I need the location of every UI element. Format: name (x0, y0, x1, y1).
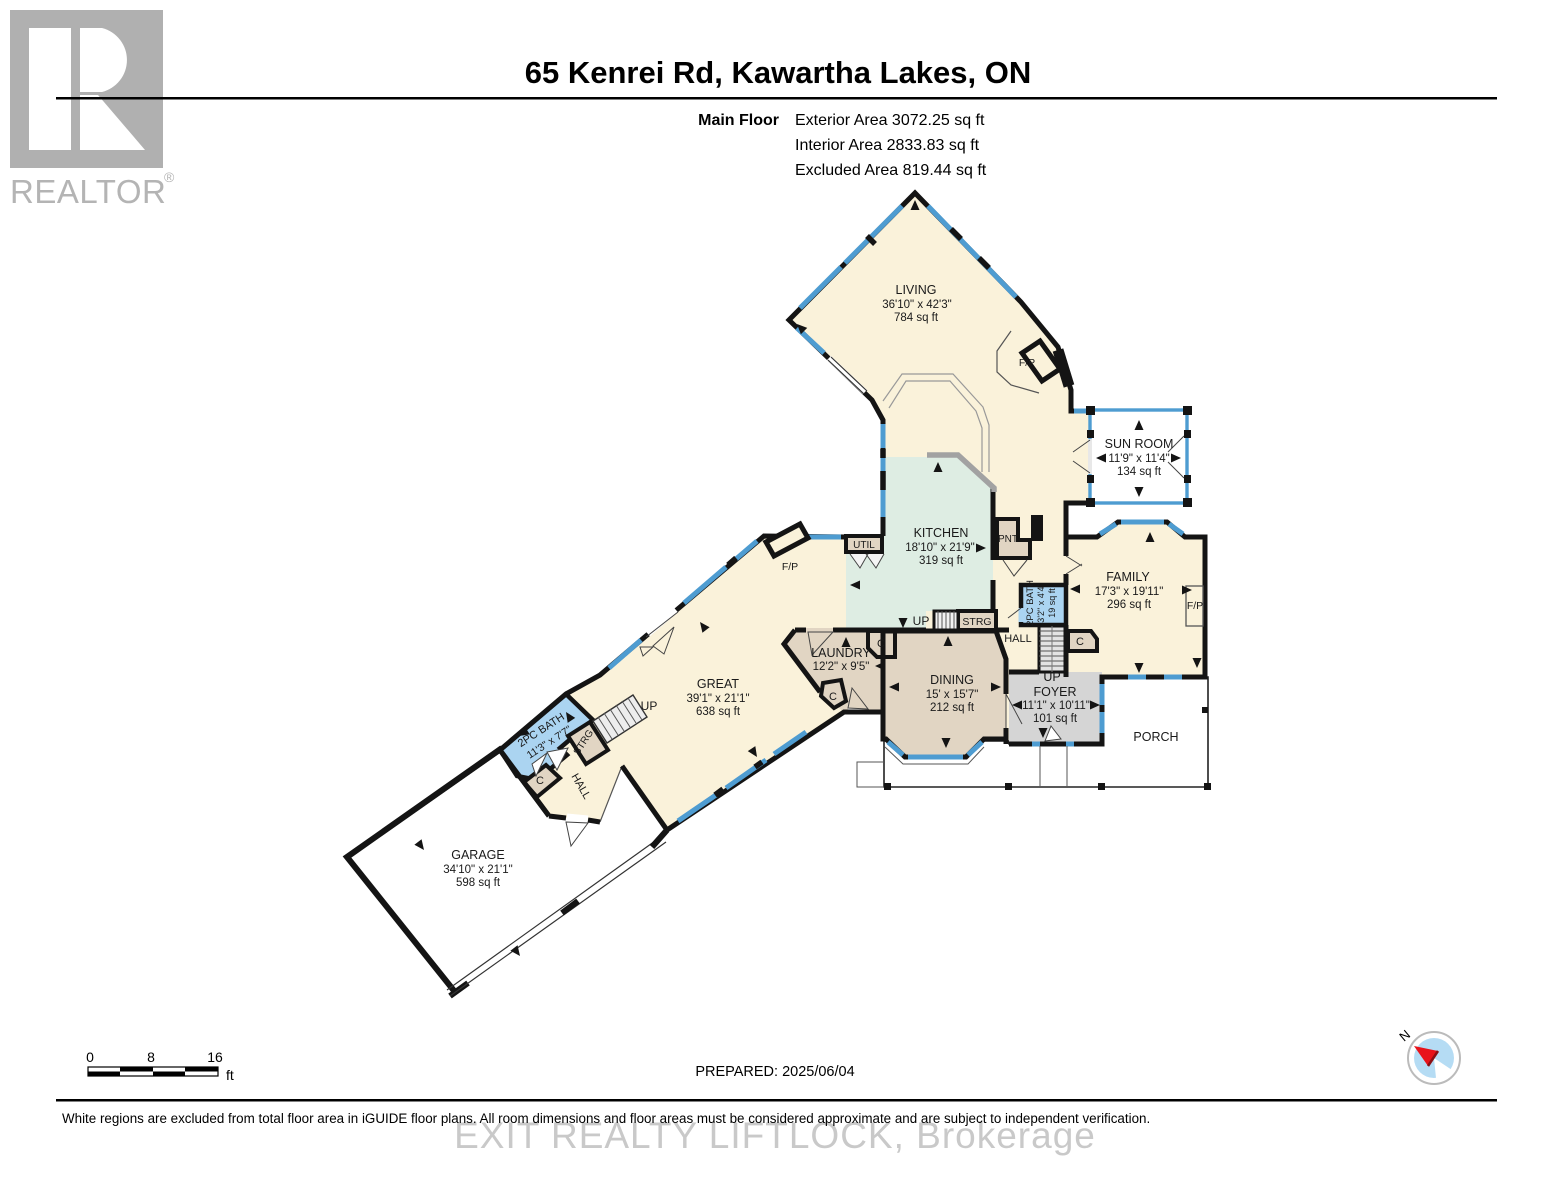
svg-text:319 sq ft: 319 sq ft (919, 555, 964, 567)
svg-text:GREAT: GREAT (697, 677, 739, 691)
svg-text:12'2" x 9'5": 12'2" x 9'5" (813, 661, 870, 673)
svg-text:®: ® (164, 169, 175, 185)
svg-text:C: C (1076, 636, 1084, 648)
svg-text:Interior Area 2833.83 sq ft: Interior Area 2833.83 sq ft (795, 137, 980, 154)
svg-text:134 sq ft: 134 sq ft (1117, 466, 1162, 478)
svg-text:HALL: HALL (1004, 633, 1032, 645)
svg-text:PREPARED: 2025/06/04: PREPARED: 2025/06/04 (695, 1064, 854, 1080)
svg-text:11'1" x 10'11": 11'1" x 10'11" (1022, 700, 1090, 712)
svg-text:18'10" x 21'9": 18'10" x 21'9" (905, 542, 974, 554)
svg-text:White regions are excluded fro: White regions are excluded from total fl… (62, 1111, 1150, 1126)
svg-text:212 sq ft: 212 sq ft (930, 702, 975, 714)
svg-text:8: 8 (147, 1049, 155, 1065)
svg-text:UP: UP (913, 614, 930, 628)
svg-text:15' x 15'7": 15' x 15'7" (926, 689, 979, 701)
svg-text:39'1" x 21'1": 39'1" x 21'1" (686, 693, 749, 705)
svg-text:101 sq ft: 101 sq ft (1033, 713, 1078, 725)
svg-text:PNT: PNT (998, 534, 1018, 545)
svg-text:36'10" x 42'3": 36'10" x 42'3" (882, 299, 951, 311)
svg-text:Exterior Area 3072.25 sq ft: Exterior Area 3072.25 sq ft (795, 112, 985, 129)
svg-text:19 sq ft: 19 sq ft (1047, 588, 1057, 618)
svg-text:598 sq ft: 598 sq ft (456, 877, 501, 889)
svg-text:F/P: F/P (1019, 357, 1035, 369)
svg-text:F/P: F/P (782, 561, 798, 573)
svg-text:2PC BATH: 2PC BATH (1025, 580, 1036, 626)
svg-text:UP: UP (1043, 670, 1060, 684)
svg-text:638 sq ft: 638 sq ft (696, 706, 741, 718)
svg-text:784 sq ft: 784 sq ft (894, 312, 939, 324)
svg-text:Main Floor: Main Floor (698, 112, 779, 129)
svg-text:ft: ft (226, 1067, 234, 1083)
svg-text:UP: UP (641, 699, 658, 713)
svg-text:PORCH: PORCH (1133, 730, 1178, 744)
svg-text:DINING: DINING (930, 673, 974, 687)
svg-text:17'3" x 19'11": 17'3" x 19'11" (1095, 586, 1164, 598)
svg-text:KITCHEN: KITCHEN (914, 526, 969, 540)
svg-text:SUN ROOM: SUN ROOM (1105, 437, 1174, 451)
svg-text:C: C (877, 638, 885, 650)
svg-text:STRG: STRG (962, 616, 991, 628)
svg-text:0: 0 (86, 1049, 94, 1065)
svg-text:16: 16 (207, 1049, 223, 1065)
svg-text:C: C (536, 775, 544, 787)
svg-text:11'9" x 11'4": 11'9" x 11'4" (1108, 453, 1169, 465)
svg-text:FOYER: FOYER (1033, 685, 1076, 699)
svg-text:3'2" x 4'4": 3'2" x 4'4" (1036, 583, 1046, 622)
svg-text:UTIL: UTIL (853, 540, 875, 551)
svg-text:REALTOR: REALTOR (10, 173, 166, 210)
svg-text:Excluded Area 819.44 sq ft: Excluded Area 819.44 sq ft (795, 162, 987, 179)
svg-text:296 sq ft: 296 sq ft (1107, 599, 1152, 611)
svg-text:LAUNDRY: LAUNDRY (811, 646, 871, 660)
svg-text:GARAGE: GARAGE (451, 848, 505, 862)
svg-text:LIVING: LIVING (896, 283, 937, 297)
svg-text:F/P: F/P (1187, 600, 1203, 612)
svg-text:65 Kenrei Rd, Kawartha Lakes,: 65 Kenrei Rd, Kawartha Lakes, ON (525, 55, 1032, 90)
svg-text:C: C (829, 691, 837, 703)
svg-text:34'10" x 21'1": 34'10" x 21'1" (443, 864, 512, 876)
svg-text:FAMILY: FAMILY (1106, 570, 1150, 584)
